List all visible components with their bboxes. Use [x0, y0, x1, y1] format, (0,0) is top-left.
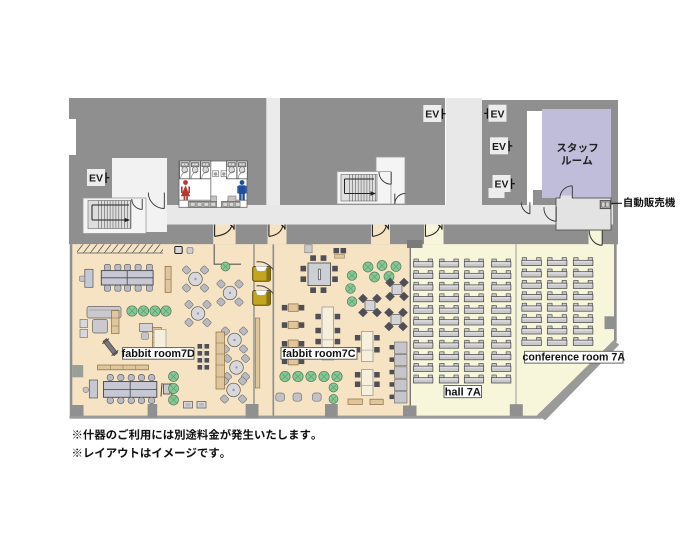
svg-text:hall 7A: hall 7A: [445, 386, 481, 398]
svg-text:EV: EV: [490, 108, 504, 120]
svg-text:EV: EV: [89, 173, 103, 185]
svg-text:conference room 7A: conference room 7A: [523, 352, 626, 364]
svg-text:fabbit room7D: fabbit room7D: [122, 348, 195, 360]
svg-text:fabbit room7C: fabbit room7C: [282, 348, 355, 360]
svg-text:EV: EV: [492, 141, 506, 153]
svg-text:EV: EV: [494, 179, 508, 191]
svg-text:EV: EV: [425, 109, 439, 121]
